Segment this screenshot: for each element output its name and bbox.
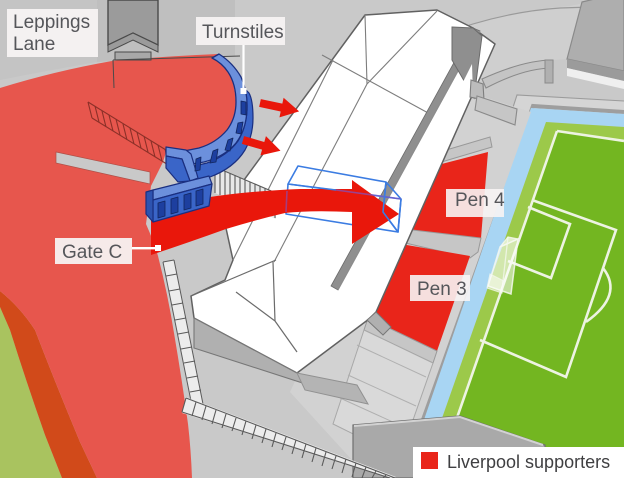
svg-text:Lane: Lane xyxy=(13,34,55,55)
svg-text:Turnstiles: Turnstiles xyxy=(202,22,284,43)
svg-text:Pen 4: Pen 4 xyxy=(455,190,505,211)
svg-text:Pen 3: Pen 3 xyxy=(417,279,467,300)
svg-text:Leppings: Leppings xyxy=(13,12,90,33)
svg-text:Liverpool supporters: Liverpool supporters xyxy=(447,452,610,472)
svg-text:Gate C: Gate C xyxy=(62,242,122,263)
